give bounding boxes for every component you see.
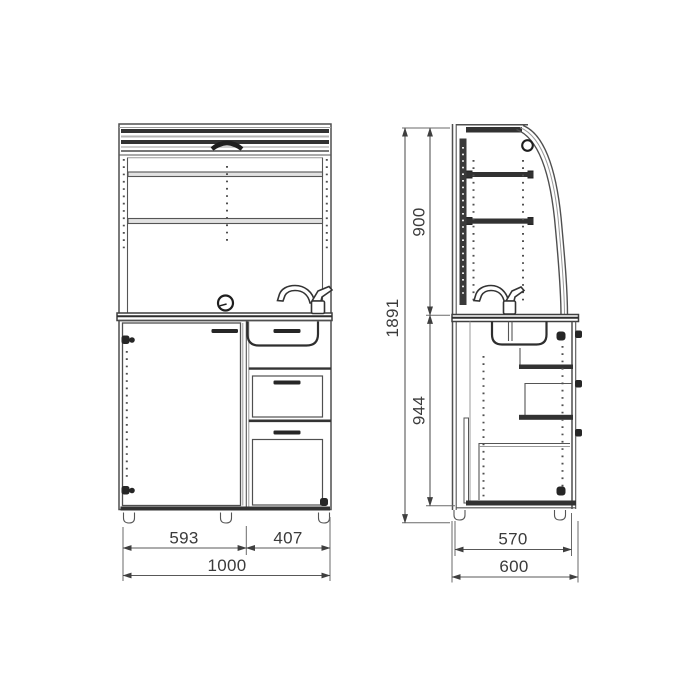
side-hutch	[456, 125, 568, 316]
bottom-drawer-side	[479, 444, 570, 501]
dim-label-lower-height: 944	[410, 396, 429, 425]
dim-label-cabinet-depth: 570	[498, 530, 527, 549]
tray-bottom	[519, 365, 573, 370]
drawer-handle-side	[575, 331, 582, 339]
technical-drawing-canvas: 593 407 1000	[0, 0, 700, 700]
leg	[319, 513, 330, 524]
faucet-base	[312, 301, 325, 314]
hinge-icon	[122, 336, 130, 345]
sink-bowl-side	[492, 322, 547, 345]
fitting	[557, 332, 566, 341]
cabinet-bottom	[466, 501, 576, 506]
corner-fitting	[320, 498, 328, 506]
middle-drawer-side	[525, 384, 572, 417]
faucet-front	[278, 286, 333, 314]
drawer-handle-side	[575, 429, 582, 437]
faucet-lever	[312, 287, 332, 302]
dim-label-total-width: 1000	[207, 556, 246, 575]
leg	[221, 513, 232, 524]
side-base-cabinet	[454, 322, 582, 521]
hinge-icon	[129, 488, 135, 494]
drawer-handle	[274, 431, 301, 435]
top-cap	[466, 127, 522, 133]
faucet-spout	[278, 286, 316, 304]
door-panel-section	[464, 418, 469, 503]
hutch-shelf	[128, 172, 323, 177]
front-view: 593 407 1000	[117, 124, 332, 581]
side-view: 900 944 1891 570 600	[383, 124, 582, 583]
front-dimensions: 593 407 1000	[123, 517, 330, 581]
drawer-handle-side	[575, 380, 582, 388]
leg	[124, 513, 135, 524]
dim-label-drawer-width: 407	[273, 529, 302, 548]
sink-bowl-front	[248, 322, 319, 346]
front-base-cabinet	[119, 321, 331, 524]
cabinet-door	[123, 323, 241, 506]
dim-label-total-height: 1891	[383, 298, 402, 337]
door-handle	[212, 329, 239, 333]
hinge-icon	[122, 486, 130, 495]
base-cabinet-outline	[119, 321, 331, 510]
dim-label-total-depth: 600	[499, 557, 528, 576]
side-dimensions: 900 944 1891 570 600	[383, 128, 578, 583]
dim-label-door-width: 593	[169, 529, 198, 548]
front-worktop	[117, 296, 332, 321]
drawer-handle	[274, 329, 301, 333]
cabinet-technical-drawing: 593 407 1000	[0, 0, 700, 700]
leg	[555, 510, 566, 520]
bottom-drawer	[253, 440, 323, 506]
worktop-knob	[218, 296, 233, 311]
roller-pivot	[522, 140, 533, 151]
side-worktop	[452, 315, 579, 322]
hutch-shelf	[128, 219, 323, 224]
dim-label-upper-height: 900	[410, 207, 429, 236]
faucet-side	[474, 286, 524, 315]
drawer-handle	[274, 381, 301, 385]
faucet-lever	[506, 287, 524, 301]
faucet-base	[504, 301, 516, 314]
fitting	[557, 487, 566, 496]
shutter-handle	[212, 143, 242, 149]
hinge-icon	[129, 337, 135, 343]
faucet-spout	[474, 286, 509, 304]
roller-shutter-slat	[121, 129, 329, 133]
leg	[454, 510, 465, 520]
cabinet-plinth	[121, 507, 331, 511]
